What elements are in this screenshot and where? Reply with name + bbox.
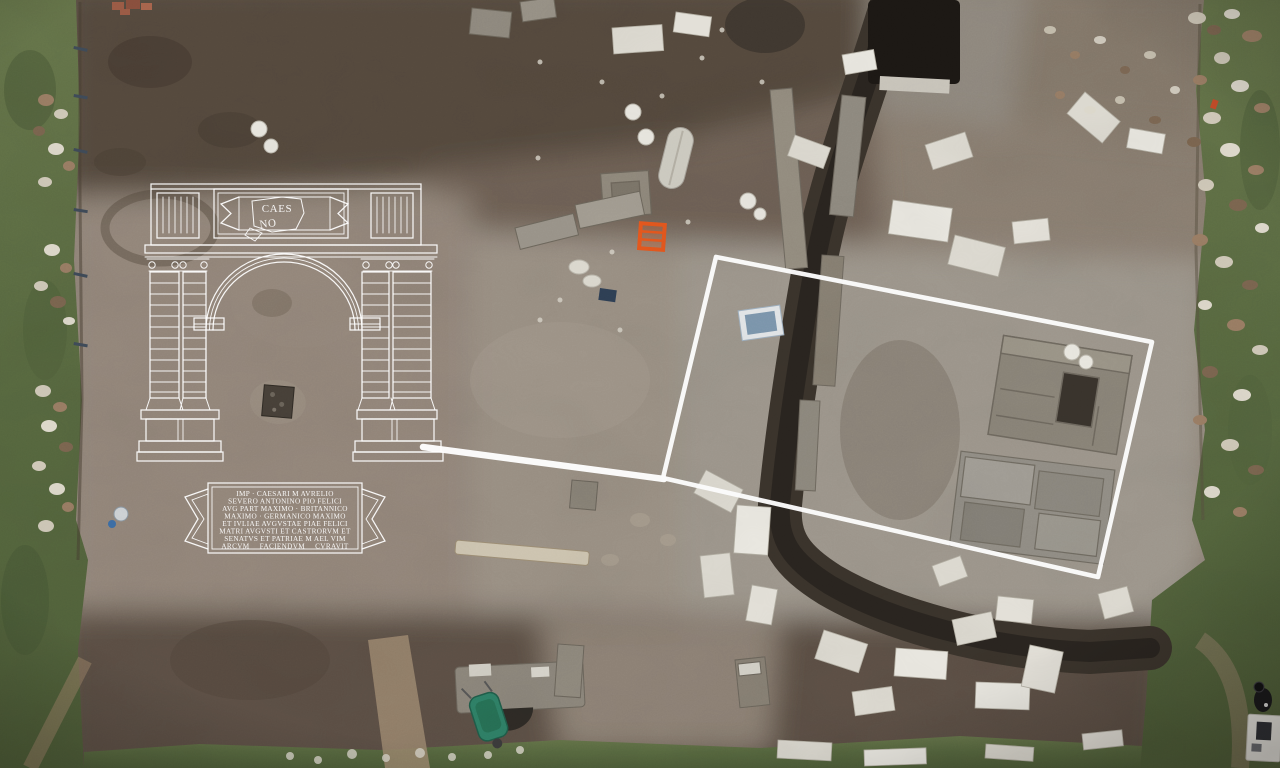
fragment-text-line2: NO — [259, 217, 277, 231]
aerial-excavation-photo: CAES NO — [0, 0, 1280, 768]
plaque-line-8: ARCVM FACIENDVM CVRAVIT — [221, 543, 348, 551]
plaque-text: IMP · CAESARI M AVRELIO SEVERO ANTONINO … — [219, 490, 351, 551]
fragment-text-line1: CAES — [262, 203, 293, 215]
photo-vignette — [0, 0, 1280, 768]
